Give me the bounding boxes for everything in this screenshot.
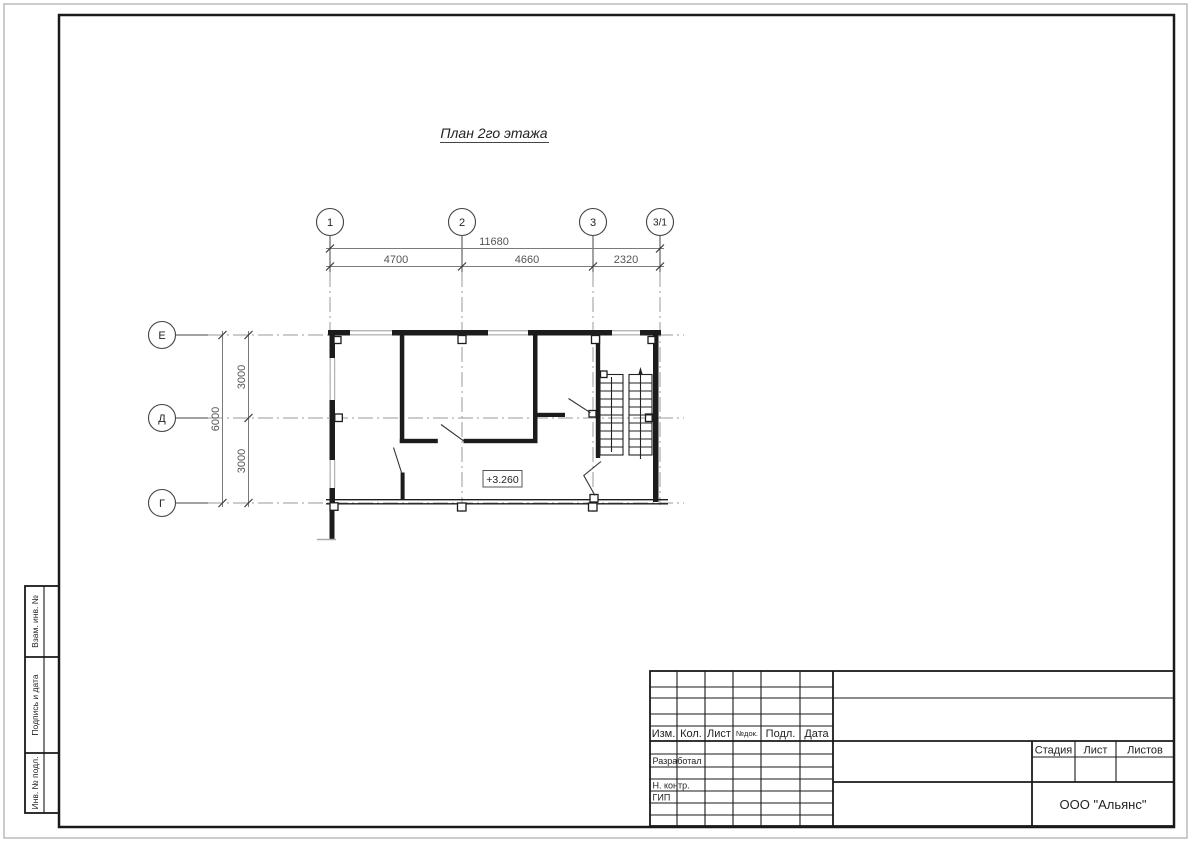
dim-vspan-1: 3000 (236, 365, 248, 389)
drawing-sheet: Взам. инв. № Подпись и дата Инв. № подл. (0, 0, 1191, 842)
tb-sheets: Листов (1127, 745, 1163, 757)
tb-col-data: Дата (804, 728, 829, 740)
strip-label-vzam: Взам. инв. № (30, 595, 40, 648)
side-strip: Взам. инв. № Подпись и дата Инв. № подл. (25, 586, 59, 813)
dim-vspan-2: 3000 (236, 449, 248, 473)
walls (317, 330, 668, 540)
axis-label-3-1: 3/1 (653, 218, 667, 229)
inner-frame (59, 15, 1174, 827)
tb-col-izm: Изм. (652, 728, 676, 740)
stairs (600, 367, 652, 459)
axis-label-2: 2 (459, 217, 465, 229)
plan-title-text: План 2го этажа (440, 125, 547, 141)
axis-label-3: 3 (590, 217, 596, 229)
tb-role-razrabotal: Разработал (653, 756, 702, 766)
stair-direction-arrow (638, 367, 643, 375)
tb-col-ndok: №док. (736, 729, 758, 738)
dim-total-height: 6000 (210, 407, 222, 431)
axis-label-1: 1 (327, 217, 333, 229)
sheet-canvas: Взам. инв. № Подпись и дата Инв. № подл. (0, 0, 1191, 842)
axis-bubbles: 1 2 3 3/1 Е Д Г (149, 209, 674, 517)
dim-total-width: 11680 (479, 236, 509, 248)
grid-axes (176, 236, 685, 516)
tb-col-podp: Подл. (766, 728, 796, 740)
axis-label-g: Г (159, 498, 165, 510)
level-mark: +3.260 (483, 471, 522, 488)
dim-span-1: 4700 (384, 254, 408, 266)
strip-label-inv: Инв. № подл. (30, 757, 40, 810)
tb-sheet: Лист (1084, 745, 1108, 757)
dim-span-3: 2320 (614, 254, 638, 266)
tb-col-kol: Кол. (680, 728, 702, 740)
tb-stage: Стадия (1035, 745, 1073, 757)
level-mark-value: +3.260 (486, 474, 519, 486)
axis-label-e: Е (158, 330, 165, 342)
drawing-title: План 2го этажа (440, 125, 549, 143)
outer-border (4, 4, 1187, 838)
tb-organization: ООО "Альянс" (1060, 797, 1147, 812)
tb-role-gip: ГИП (653, 793, 671, 803)
tb-col-list: Лист (707, 728, 731, 740)
dim-span-2: 4660 (515, 254, 539, 266)
title-block: Изм. Кол. Лист №док. Подл. Дата Разработ… (650, 671, 1174, 826)
axis-label-d: Д (158, 413, 166, 425)
strip-label-podpis: Подпись и дата (30, 674, 40, 735)
tb-role-nkontr: Н. контр. (653, 781, 690, 791)
sheet-frame (4, 4, 1187, 838)
